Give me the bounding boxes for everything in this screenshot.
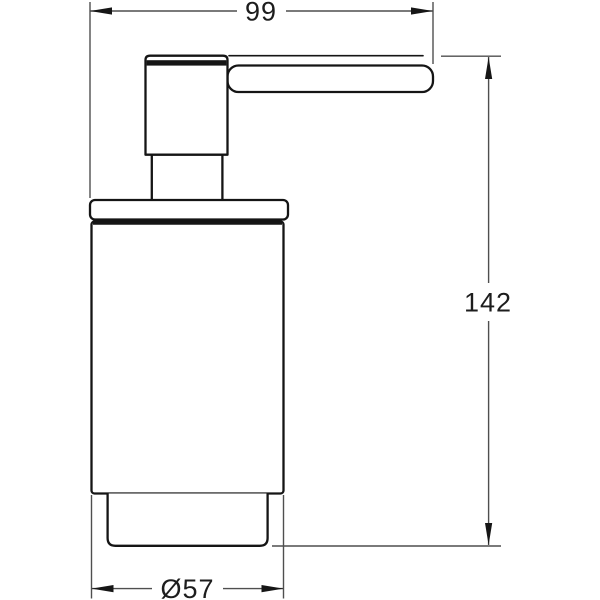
diameter-arrowhead-right: [262, 585, 284, 592]
height-arrowhead-bottom: [485, 523, 492, 545]
technical-drawing: 99 142 Ø57: [0, 0, 600, 600]
width-arrowhead-right: [411, 7, 433, 14]
pump-head: [146, 56, 228, 155]
dimension-height: 142: [272, 56, 512, 546]
height-arrowhead-top: [485, 57, 492, 79]
diameter-arrowhead-left: [92, 585, 114, 592]
glass-body: [92, 222, 284, 494]
pump-head-stripe: [147, 60, 227, 65]
width-arrowhead-left: [90, 7, 112, 14]
height-dimension-label: 142: [464, 288, 512, 318]
width-dimension-label: 99: [245, 0, 277, 27]
soap-dispenser: [90, 56, 433, 546]
drawing-canvas: 99 142 Ø57: [0, 0, 600, 600]
lid-collar: [90, 200, 288, 220]
pump-neck: [152, 155, 223, 202]
dimension-width: 99: [90, 0, 433, 198]
diameter-dimension-label: Ø57: [160, 574, 214, 600]
glass-base: [108, 494, 268, 546]
pump-spout: [228, 66, 434, 93]
